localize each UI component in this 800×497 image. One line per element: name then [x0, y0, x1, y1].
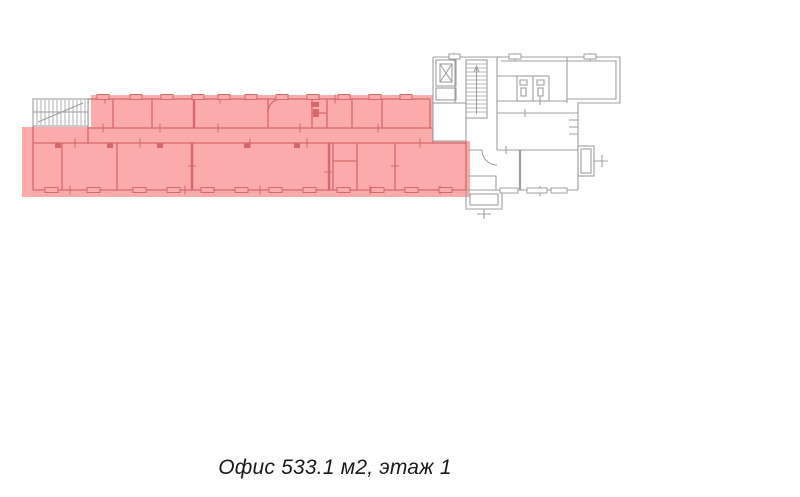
window-mark: [276, 95, 288, 100]
window-mark: [218, 95, 230, 100]
window-mark: [269, 188, 282, 193]
wc-fixture: [521, 88, 526, 96]
window-mark: [527, 188, 547, 193]
pilaster: [294, 143, 300, 148]
window-mark: [192, 95, 204, 100]
wc-toilet: [313, 109, 319, 117]
elevator-x-mark: [440, 64, 452, 82]
window-mark: [307, 95, 319, 100]
window-mark: [245, 95, 257, 100]
window-mark: [449, 54, 460, 59]
pilaster: [55, 143, 61, 148]
wc-fixture: [538, 88, 543, 96]
window-mark: [584, 54, 596, 59]
window-mark: [45, 188, 58, 193]
porch: [466, 190, 502, 209]
window-mark: [87, 188, 100, 193]
gray-window-marks: [449, 54, 596, 193]
right-protrusion: [578, 146, 594, 176]
window-mark: [133, 188, 146, 193]
pilaster: [107, 143, 113, 148]
window-mark: [201, 188, 214, 193]
window-mark: [371, 188, 384, 193]
window-mark: [303, 188, 316, 193]
right-wing-room-left: [433, 103, 466, 141]
floor-caption: Офис 533.1 м2, этаж 1: [0, 456, 670, 480]
window-mark: [509, 54, 521, 59]
pilaster: [244, 143, 250, 148]
window-mark: [400, 95, 412, 100]
wc-fixture: [520, 80, 527, 85]
window-mark: [337, 188, 350, 193]
wc-sink: [311, 102, 319, 107]
window-mark: [338, 95, 350, 100]
floor-plan: [0, 0, 800, 497]
wc-fixture: [537, 80, 544, 85]
window-mark: [369, 95, 381, 100]
elevator-lobby: [436, 88, 456, 100]
right-protrusion-inner: [581, 149, 591, 173]
window-mark: [405, 188, 418, 193]
window-mark: [161, 95, 173, 100]
stairwell-2-arrow: [474, 66, 479, 114]
window-mark: [551, 188, 567, 193]
window-mark: [439, 188, 452, 193]
floorplan-page: Офис 533.1 м2, этаж 1: [0, 0, 800, 497]
window-mark: [235, 188, 248, 193]
porch-inner: [470, 194, 498, 205]
window-mark: [500, 188, 518, 193]
right-door-arc: [482, 150, 497, 165]
pilaster: [157, 143, 163, 148]
window-mark: [167, 188, 180, 193]
window-mark: [97, 95, 109, 100]
window-mark: [130, 95, 142, 100]
